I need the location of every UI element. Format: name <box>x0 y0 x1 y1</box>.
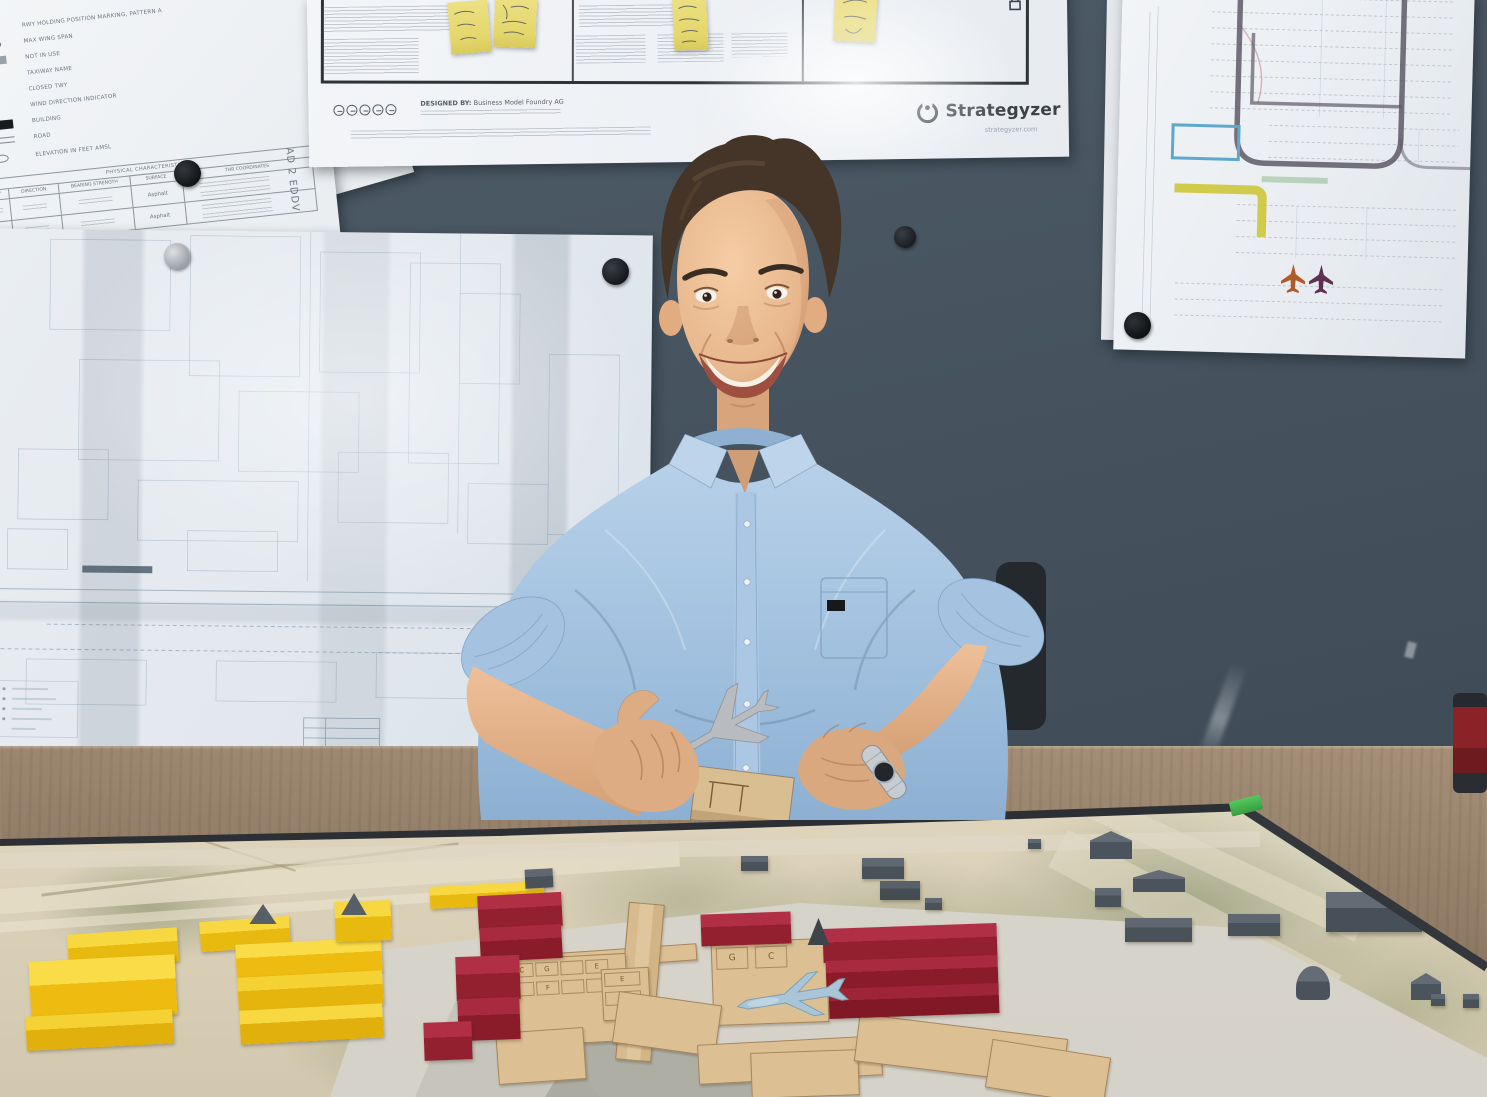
red-model-block <box>700 911 791 946</box>
gray-building <box>1228 914 1280 936</box>
photo-architect-at-airport-model: RWY HOLDING POSITION MARKING, PATTERN A … <box>0 0 1487 1097</box>
stand-label: E <box>604 971 641 987</box>
gray-building <box>1125 918 1192 942</box>
stand-label: G <box>535 961 559 976</box>
red-model-block <box>455 955 520 1001</box>
gray-building <box>862 858 904 879</box>
gray-building <box>880 881 920 900</box>
gray-building <box>1431 994 1445 1006</box>
gray-building <box>1095 888 1121 907</box>
stand-label: C <box>755 945 788 968</box>
gray-building <box>1463 994 1479 1008</box>
gray-building <box>1028 839 1041 849</box>
apron-panel-wood <box>750 1049 860 1097</box>
pocket-brand-tag <box>827 600 845 611</box>
person-architect <box>425 110 1065 820</box>
red-model-block <box>423 1021 472 1061</box>
red-desk-object <box>1453 693 1487 793</box>
stand-label: F <box>536 980 560 995</box>
head <box>659 135 841 406</box>
stand-label: G <box>716 947 749 970</box>
gray-building <box>741 856 768 871</box>
gray-building <box>925 898 942 910</box>
gray-building <box>525 868 554 888</box>
yellow-model-block <box>334 900 391 942</box>
